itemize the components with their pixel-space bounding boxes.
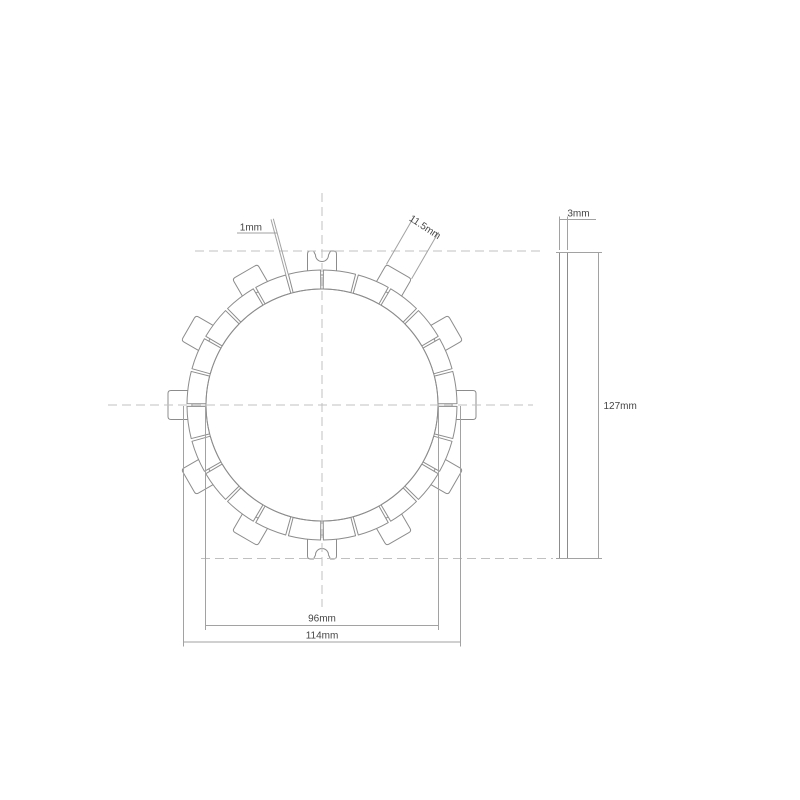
friction-id-label: 96mm xyxy=(308,614,336,625)
side-view xyxy=(560,253,568,559)
groove-width-label: 1mm xyxy=(240,223,262,234)
thickness-label: 3mm xyxy=(567,209,589,220)
friction-od-label: 114mm xyxy=(306,631,339,642)
groove-extension-line xyxy=(271,219,286,275)
tab-width-label: 11.5mm xyxy=(407,213,443,242)
tab-width-extension-line xyxy=(386,218,413,265)
side-view-plate-section xyxy=(560,253,568,559)
clutch-plate-technical-drawing: 1mm 11.5mm 3mm 127mm 96mm 114mm xyxy=(0,0,800,800)
groove-extension-line xyxy=(273,219,288,275)
leader-lines xyxy=(237,218,439,279)
overall-diameter-label: 127mm xyxy=(604,401,637,412)
drawing-page: 1mm 11.5mm 3mm 127mm 96mm 114mm xyxy=(0,0,800,800)
